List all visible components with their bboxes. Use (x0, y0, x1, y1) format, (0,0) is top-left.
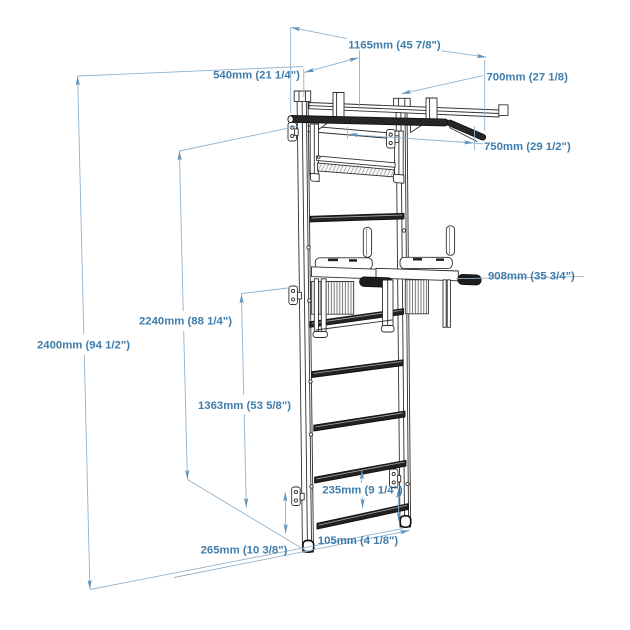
svg-text:908mm (35 3/4"): 908mm (35 3/4") (488, 270, 575, 282)
svg-text:540mm (21 1/4"): 540mm (21 1/4") (213, 70, 300, 82)
svg-text:750mm (29 1/2"): 750mm (29 1/2") (484, 141, 571, 153)
svg-text:700mm (27 1/8): 700mm (27 1/8) (487, 72, 569, 84)
svg-text:105mm (4 1/8"): 105mm (4 1/8") (318, 535, 399, 547)
svg-text:235mm (9 1/4"): 235mm (9 1/4") (322, 485, 403, 497)
svg-text:1363mm (53 5/8"): 1363mm (53 5/8") (198, 400, 291, 412)
svg-text:2240mm (88 1/4"): 2240mm (88 1/4") (139, 316, 232, 328)
svg-text:265mm (10 3/8"): 265mm (10 3/8") (201, 545, 288, 557)
svg-text:2400mm (94 1/2"): 2400mm (94 1/2") (37, 340, 130, 352)
svg-text:1165mm (45 7/8"): 1165mm (45 7/8") (348, 40, 441, 52)
